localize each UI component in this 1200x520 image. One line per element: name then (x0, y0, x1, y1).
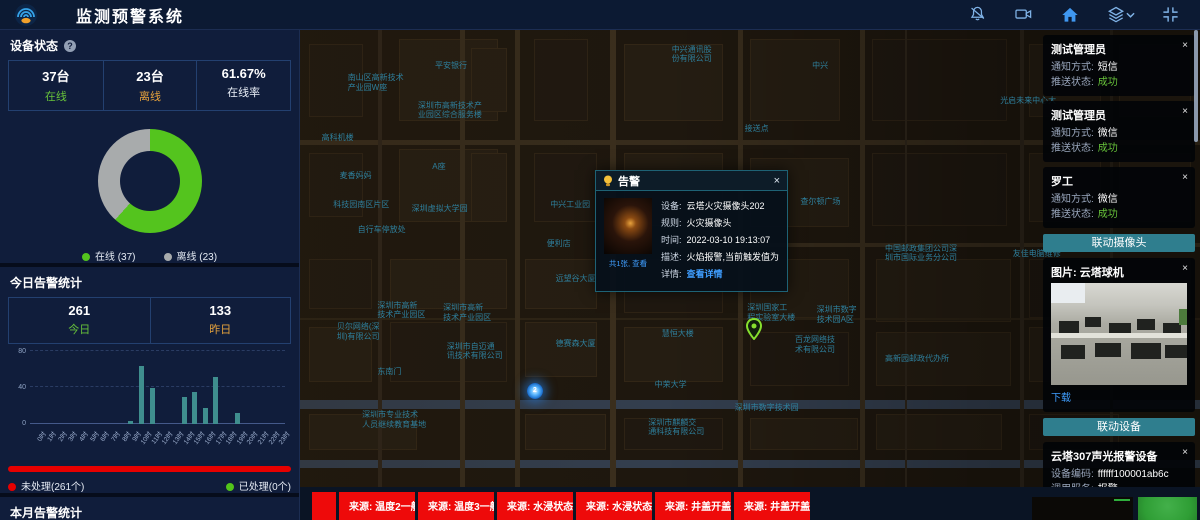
bar-slot (115, 352, 126, 424)
bell-off-icon[interactable] (968, 5, 987, 24)
map-building-block (872, 39, 1007, 121)
bar (128, 421, 133, 424)
app-header: 监测预警系统 (0, 0, 1200, 30)
today-alerts-section: 今日告警统计 261今日133昨日 040800时1时2时3时4时5时6时7时8… (0, 267, 299, 493)
bar (150, 388, 155, 424)
bar-slot (41, 352, 52, 424)
card-row-value: 短信 (1098, 62, 1118, 73)
map-place-label: 深圳虚拟大学园 (412, 204, 468, 214)
home-icon[interactable] (1060, 5, 1080, 25)
map-place-label: A座 (432, 162, 445, 172)
map-place-label: 接送点 (745, 124, 769, 134)
bar-slot (168, 352, 179, 424)
map-place-label: 高科机楼 (322, 133, 354, 143)
camera-card: × 图片: 云塔球机 下载 (1043, 258, 1195, 412)
photo-shape-decor (1095, 343, 1121, 357)
alert-tile[interactable]: 来源: 水浸状态 (576, 492, 652, 520)
bar-slots (30, 352, 285, 424)
bar-slot (189, 352, 200, 424)
stat-label: 今日 (11, 321, 148, 337)
legend-label: 离线 (23) (177, 252, 218, 263)
bar (213, 377, 218, 424)
map-building-block (872, 153, 1007, 226)
map-building-block (750, 39, 840, 121)
video-camera-icon[interactable] (1013, 5, 1034, 24)
x-tick: 14时 (179, 426, 190, 458)
map-road (860, 30, 865, 487)
popup-field-row: 设备:云塔火灾摄像头202 (661, 198, 779, 215)
x-tick: 1时 (41, 426, 52, 458)
today-alerts-stats: 261今日133昨日 (8, 297, 291, 344)
linked-device-header[interactable]: 联动设备 (1043, 418, 1195, 436)
popup-field-row: 规则:火灾摄像头 (661, 215, 779, 232)
y-tick-label: 80 (10, 348, 26, 355)
bar-slot (243, 352, 254, 424)
bottom-alert-bar: 来源: 温度2一般来源: 温度3一般来源: 水浸状态来源: 水浸状态来源: 井盖… (300, 487, 1200, 520)
map-building-block (309, 259, 372, 309)
x-tick: 8时 (115, 426, 126, 458)
month-alerts-section: 本月告警统计 7631146 (0, 497, 299, 520)
x-tick: 23时 (274, 426, 285, 458)
alert-popup: 告警 × 共1张, 查看 设备:云塔火灾摄像头202规则:火灾摄像头时间:202… (595, 170, 788, 292)
card-row-value: 成功 (1098, 209, 1118, 220)
map-place-label: 深圳市高新 技术产业园区 (377, 301, 425, 320)
photo-shape-decor (1165, 345, 1187, 358)
popup-field-row: 时间:2022-03-10 19:13:07 (661, 232, 779, 249)
stat-value: 61.67% (199, 66, 288, 81)
close-icon[interactable]: × (1182, 40, 1188, 51)
header-icons (968, 5, 1200, 25)
card-row: 通知方式:微信 (1051, 192, 1187, 207)
alert-popup-left: 共1张, 查看 (604, 198, 652, 283)
card-row-label: 推送状态: (1051, 143, 1094, 154)
device-status-stats: 37台在线23台离线61.67%在线率 (8, 60, 291, 111)
bar-slot (274, 352, 285, 424)
legend-dot-icon (164, 253, 172, 261)
x-tick: 22时 (264, 426, 275, 458)
month-alerts-header: 本月告警统计 (0, 497, 299, 520)
alert-tile[interactable]: 来源: 水浸状态 (497, 492, 573, 520)
x-tick: 21时 (253, 426, 264, 458)
card-row-label: 推送状态: (1051, 209, 1094, 220)
map-place-label: 德赛森大厦 (556, 339, 596, 349)
alert-snapshot-thumbnail[interactable] (604, 198, 652, 254)
hourly-alerts-bar-chart: 040800时1时2时3时4时5时6时7时8时9时10时11时12时13时14时… (8, 348, 291, 460)
alert-popup-body: 共1张, 查看 设备:云塔火灾摄像头202规则:火灾摄像头时间:2022-03-… (596, 191, 787, 291)
map-building-block (534, 39, 588, 121)
card-title: 云塔307声光报警设备 (1051, 448, 1187, 464)
today-alerts-header: 今日告警统计 (0, 267, 299, 295)
view-details-link[interactable]: 查看详情 (687, 266, 723, 283)
map-place-label: 深圳市数字技术园 (735, 403, 799, 413)
photo-shape-decor (1051, 283, 1085, 303)
processed-label: 已处理(0个) (239, 482, 291, 493)
popup-field-label: 设备: (661, 198, 682, 215)
map-place-label: 慧恒大楼 (662, 329, 694, 339)
bar-slot (51, 352, 62, 424)
x-tick: 19时 (232, 426, 243, 458)
notification-card: ×测试管理员通知方式:短信推送状态:成功 (1043, 35, 1195, 96)
popup-field-value: 火灾摄像头 (687, 215, 732, 232)
x-tick: 7时 (104, 426, 115, 458)
alert-popup-titlebar: 告警 × (596, 171, 787, 191)
page-title: 监测预警系统 (76, 3, 184, 27)
alert-popup-title: 告警 (618, 173, 640, 189)
photo-shape-decor (1179, 309, 1187, 325)
map-place-label: 深圳市麒麟交 通科技有限公司 (648, 418, 704, 437)
legend-label: 在线 (37) (95, 252, 136, 263)
right-scrollbar[interactable] (1194, 30, 1198, 142)
popup-field-value: 云塔火灾摄像头202 (687, 198, 765, 215)
map-place-label: 高新园邮政代办所 (885, 354, 949, 364)
card-row: 推送状态:成功 (1051, 75, 1187, 90)
popup-field-label: 时间: (661, 232, 682, 249)
map-building-block (876, 414, 1002, 451)
camera-photo[interactable] (1051, 283, 1187, 385)
unprocessed-legend-item: 未处理(261个) (8, 478, 84, 493)
stat-value: 261 (11, 303, 148, 318)
x-tick-labels: 0时1时2时3时4时5时6时7时8时9时10时11时12时13时14时15时16… (30, 426, 285, 458)
map-building-block (876, 259, 1011, 323)
popup-field-row: 描述:火焰报警,当前触发值为... (661, 249, 779, 266)
bar (235, 413, 240, 424)
bar-slot (232, 352, 243, 424)
map-road (460, 30, 465, 487)
map-building-block (750, 418, 858, 450)
map-place-label: 中兴 (812, 61, 828, 71)
photo-shape-decor (1051, 333, 1187, 338)
close-icon[interactable]: × (1182, 172, 1188, 183)
map-place-label: 东南门 (377, 367, 401, 377)
popup-field-value: 2022-03-10 19:13:07 (687, 232, 771, 249)
y-tick-label: 40 (10, 384, 26, 391)
device-status-donut-chart (98, 129, 202, 233)
stat-label: 在线 (11, 88, 101, 104)
card-row-value: 成功 (1098, 77, 1118, 88)
photo-shape-decor (1085, 317, 1101, 327)
bar-slot (83, 352, 94, 424)
stat-cell: 261今日 (9, 298, 150, 343)
x-tick: 0时 (30, 426, 41, 458)
close-icon[interactable]: × (1182, 447, 1188, 458)
bar-slot (126, 352, 137, 424)
map-place-label: 百龙网络技 术有限公司 (795, 335, 835, 354)
popup-field-value: 火焰报警,当前触发值为... (687, 249, 779, 266)
month-alerts-title: 本月告警统计 (10, 504, 82, 520)
map-building-block (525, 414, 606, 451)
card-row: 通知方式:微信 (1051, 126, 1187, 141)
alert-tile[interactable]: 来源: 温度3一般 (418, 492, 494, 520)
map-building-block (525, 322, 597, 377)
x-tick: 16时 (200, 426, 211, 458)
right-panel: ×测试管理员通知方式:短信推送状态:成功×测试管理员通知方式:微信推送状态:成功… (1040, 30, 1198, 520)
y-tick-label: 0 (10, 420, 26, 427)
card-row: 推送状态:成功 (1051, 141, 1187, 156)
map-place-label: 中兴工业园 (550, 200, 590, 210)
processed-legend-item: 已处理(0个) (226, 478, 291, 493)
map-place-label: 深圳市专业技术 人员继续教育基地 (362, 410, 426, 429)
device-status-title: 设备状态 (10, 37, 58, 54)
x-tick-label: 23时 (276, 429, 292, 446)
x-tick: 5时 (83, 426, 94, 458)
map-place-label: 南山区高新技术 产业园W座 (348, 73, 404, 92)
bar-slot (104, 352, 115, 424)
photo-shape-decor (1131, 343, 1161, 359)
alert-tile-fragment[interactable] (312, 492, 336, 520)
x-tick: 3时 (62, 426, 73, 458)
legend-dot-icon (82, 253, 90, 261)
alert-tile[interactable]: 来源: 温度2一般 (339, 492, 415, 520)
map-place-label: 中国邮政集团公司深 圳市国际业务分公司 (885, 244, 957, 263)
processed-legend: 未处理(261个) 已处理(0个) (8, 478, 291, 493)
card-row-label: 通知方式: (1051, 194, 1094, 205)
unprocessed-progress-bar (8, 466, 291, 472)
card-row-value: ffffff100001ab6c (1098, 469, 1169, 480)
map-place-label: 贝尔网络(深 圳)有限公司 (337, 322, 380, 341)
close-icon[interactable]: × (1182, 263, 1188, 274)
map-place-label: 中兴通讯股 份有限公司 (672, 45, 712, 64)
stat-label: 昨日 (153, 321, 289, 337)
app-logo-icon (14, 3, 38, 27)
camera-feed-thumbnail[interactable] (1032, 497, 1133, 520)
map-cluster-marker[interactable]: 2 (527, 383, 543, 399)
bar-slot (94, 352, 105, 424)
layers-icon[interactable] (1106, 5, 1135, 25)
x-tick: 10时 (136, 426, 147, 458)
map-road (515, 30, 520, 487)
popup-field-label: 描述: (661, 249, 682, 266)
osd-text-decor (1114, 499, 1130, 501)
card-title: 测试管理员 (1051, 107, 1187, 123)
fullscreen-icon[interactable] (1161, 5, 1180, 24)
help-icon[interactable]: ? (64, 40, 76, 52)
card-row: 设备编码:ffffff100001ab6c (1051, 467, 1187, 482)
map-place-label: 深圳市高新 技术产业园区 (443, 303, 491, 322)
stat-cell: 133昨日 (150, 298, 291, 343)
map-place-label: 便利店 (547, 239, 571, 249)
map-place-label: 远望谷大厦 (556, 274, 596, 284)
bar-slot (221, 352, 232, 424)
bar-slot (73, 352, 84, 424)
device-location-pin-icon[interactable] (746, 318, 762, 340)
donut-legend-item: 离线 (23) (164, 248, 218, 263)
unprocessed-label: 未处理(261个) (21, 482, 84, 493)
bar-slot (253, 352, 264, 424)
alert-tile[interactable]: 来源: 井盖开盖告警 (655, 492, 731, 520)
bar (182, 397, 187, 424)
stat-value: 133 (153, 303, 289, 318)
bar-slot (200, 352, 211, 424)
notification-cards: ×测试管理员通知方式:短信推送状态:成功×测试管理员通知方式:微信推送状态:成功… (1040, 35, 1198, 228)
today-alerts-title: 今日告警统计 (10, 274, 82, 291)
x-tick: 20时 (243, 426, 254, 458)
bar-slot (136, 352, 147, 424)
donut-legend-item: 在线 (37) (82, 248, 136, 263)
map-place-label: 中荣大学 (655, 380, 687, 390)
popup-close-icon[interactable]: × (774, 175, 780, 187)
stat-cell: 23台离线 (103, 61, 197, 110)
notification-card: ×罗工通知方式:微信推送状态:成功 (1043, 167, 1195, 228)
photo-shape-decor (1137, 319, 1155, 330)
donut-wrap (0, 115, 299, 247)
x-tick: 15时 (189, 426, 200, 458)
device-status-header: 设备状态 ? (0, 30, 299, 58)
left-panel: 设备状态 ? 37台在线23台离线61.67%在线率 在线 (37)离线 (23… (0, 30, 300, 520)
map-building-block (534, 153, 597, 222)
bar-slot (179, 352, 190, 424)
alert-tiles: 来源: 温度2一般来源: 温度3一般来源: 水浸状态来源: 水浸状态来源: 井盖… (312, 492, 810, 520)
map-place-label: 科技园南区片区 (333, 200, 389, 210)
x-tick: 12时 (158, 426, 169, 458)
card-title: 罗工 (1051, 173, 1187, 189)
card-row: 通知方式:短信 (1051, 60, 1187, 75)
close-icon[interactable]: × (1182, 106, 1188, 117)
x-tick: 9时 (126, 426, 137, 458)
map-place-label: 自行车停放处 (358, 225, 406, 235)
x-tick: 11时 (147, 426, 158, 458)
stat-label: 离线 (106, 88, 195, 104)
map-place-label: 麦香妈妈 (340, 171, 372, 181)
card-row-label: 通知方式: (1051, 62, 1094, 73)
green-dot-icon (226, 483, 234, 491)
alert-tile[interactable]: 来源: 井盖开盖告警 (734, 492, 810, 520)
bar-slot (147, 352, 158, 424)
card-row-label: 通知方式: (1051, 128, 1094, 139)
bar-slot (62, 352, 73, 424)
alarm-bulb-icon (603, 175, 613, 187)
stat-value: 23台 (106, 66, 195, 85)
map-place-label: 深圳市自迈通 讯技术有限公司 (447, 342, 503, 361)
x-tick: 13时 (168, 426, 179, 458)
card-row-value: 微信 (1098, 128, 1118, 139)
linked-camera-header[interactable]: 联动摄像头 (1043, 234, 1195, 252)
card-title: 测试管理员 (1051, 41, 1187, 57)
x-tick: 18时 (221, 426, 232, 458)
x-tick: 2时 (51, 426, 62, 458)
bar-slot (30, 352, 41, 424)
popup-field-label: 规则: (661, 215, 682, 232)
bar-slot (158, 352, 169, 424)
map-building-block (471, 153, 507, 222)
bar (139, 366, 144, 425)
device-status-section: 设备状态 ? 37台在线23台离线61.67%在线率 在线 (37)离线 (23… (0, 30, 299, 263)
card-row-label: 推送状态: (1051, 77, 1094, 88)
donut-legend: 在线 (37)离线 (23) (0, 247, 299, 263)
card-row-value: 微信 (1098, 194, 1118, 205)
popup-field-row: 详情:查看详情 (661, 266, 779, 283)
card-row: 推送状态:成功 (1051, 207, 1187, 222)
snapshot-view-link[interactable]: 共1张, 查看 (604, 258, 652, 269)
camera-card-title: 图片: 云塔球机 (1051, 264, 1187, 280)
camera-feed-green-thumbnail[interactable] (1138, 497, 1197, 520)
map-place-label: 查尔顿广场 (800, 197, 840, 207)
card-row-label: 设备编码: (1051, 469, 1094, 480)
map-place-label: 平安银行 (435, 61, 467, 71)
photo-shape-decor (1061, 345, 1085, 359)
bar (203, 408, 208, 424)
card-row-value: 成功 (1098, 143, 1118, 154)
chevron-down-icon (1126, 11, 1135, 19)
gridline (30, 350, 285, 351)
notification-card: ×测试管理员通知方式:微信推送状态:成功 (1043, 101, 1195, 162)
stat-cell: 61.67%在线率 (196, 61, 290, 110)
map-place-label: 深圳市数字 技术园A区 (817, 305, 857, 324)
bar-slot (264, 352, 275, 424)
red-dot-icon (8, 483, 16, 491)
photo-shape-decor (1059, 321, 1079, 333)
app-root: 监测预警系统 (0, 0, 1200, 520)
bar-slot (211, 352, 222, 424)
bar (192, 392, 197, 424)
alert-popup-fields: 设备:云塔火灾摄像头202规则:火灾摄像头时间:2022-03-10 19:13… (652, 198, 779, 283)
stat-label: 在线率 (199, 84, 288, 100)
stat-cell: 37台在线 (9, 61, 103, 110)
x-tick: 17时 (211, 426, 222, 458)
map-place-label: 深圳市高新技术产 业园区综合服务楼 (418, 101, 482, 120)
download-link[interactable]: 下载 (1051, 389, 1071, 404)
popup-field-label: 详情: (661, 266, 682, 283)
stat-value: 37台 (11, 66, 101, 85)
x-tick: 4时 (73, 426, 84, 458)
x-tick: 6时 (94, 426, 105, 458)
